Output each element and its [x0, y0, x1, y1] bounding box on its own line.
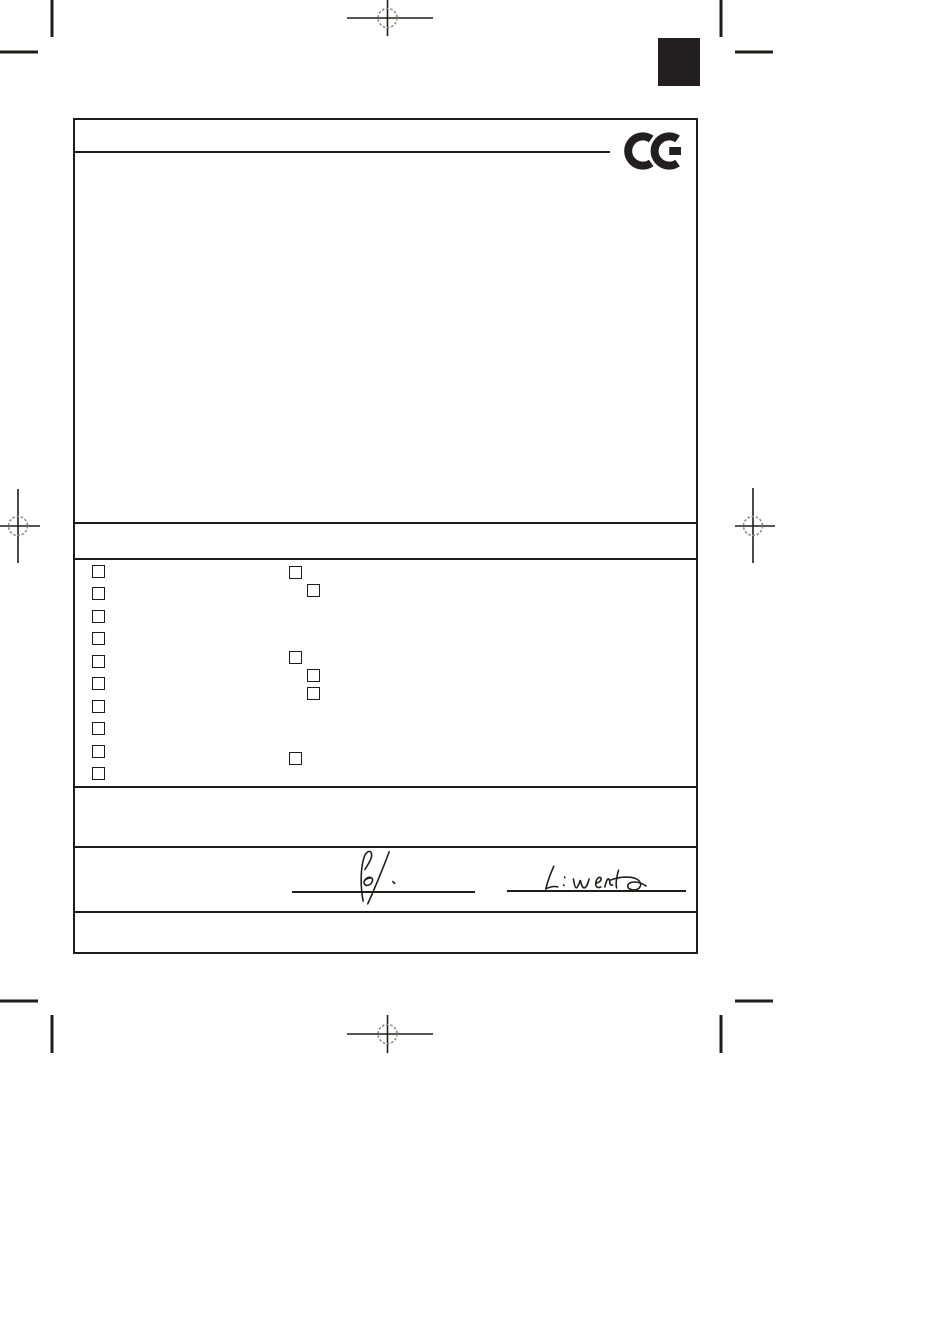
document-page: [0, 0, 950, 1344]
section-divider-2: [73, 558, 698, 560]
crop-mark-bottom-right: [715, 995, 775, 1057]
registration-target-top-center: [340, 0, 436, 42]
crop-mark-top-right: [715, 0, 775, 60]
registration-target-bottom-center: [340, 1010, 436, 1058]
registration-target-left-middle: [0, 485, 48, 570]
checkbox[interactable]: [92, 610, 105, 623]
checkbox[interactable]: [92, 767, 105, 780]
checkbox[interactable]: [307, 669, 320, 682]
checkbox[interactable]: [289, 566, 302, 579]
checkbox[interactable]: [307, 687, 320, 700]
ce-mark-icon: [623, 128, 689, 174]
checkbox[interactable]: [92, 677, 105, 690]
checkbox[interactable]: [92, 632, 105, 645]
section-divider-5: [73, 911, 698, 913]
signature-left: [352, 847, 404, 905]
checkbox[interactable]: [92, 565, 105, 578]
registration-target-right-middle: [730, 485, 780, 570]
checkbox[interactable]: [92, 745, 105, 758]
header-rule: [73, 151, 610, 153]
print-registration-block: [658, 38, 700, 86]
checkbox[interactable]: [289, 752, 302, 765]
checkbox[interactable]: [289, 651, 302, 664]
crop-mark-top-left: [0, 0, 60, 60]
checkbox[interactable]: [92, 587, 105, 600]
section-divider-3: [73, 786, 698, 788]
section-divider-1: [73, 522, 698, 524]
checkbox[interactable]: [92, 700, 105, 713]
crop-mark-bottom-left: [0, 995, 60, 1057]
checkbox[interactable]: [92, 722, 105, 735]
declaration-form-box: [73, 118, 698, 954]
signature-right: [540, 864, 648, 898]
checkbox[interactable]: [307, 584, 320, 597]
checkbox[interactable]: [92, 655, 105, 668]
